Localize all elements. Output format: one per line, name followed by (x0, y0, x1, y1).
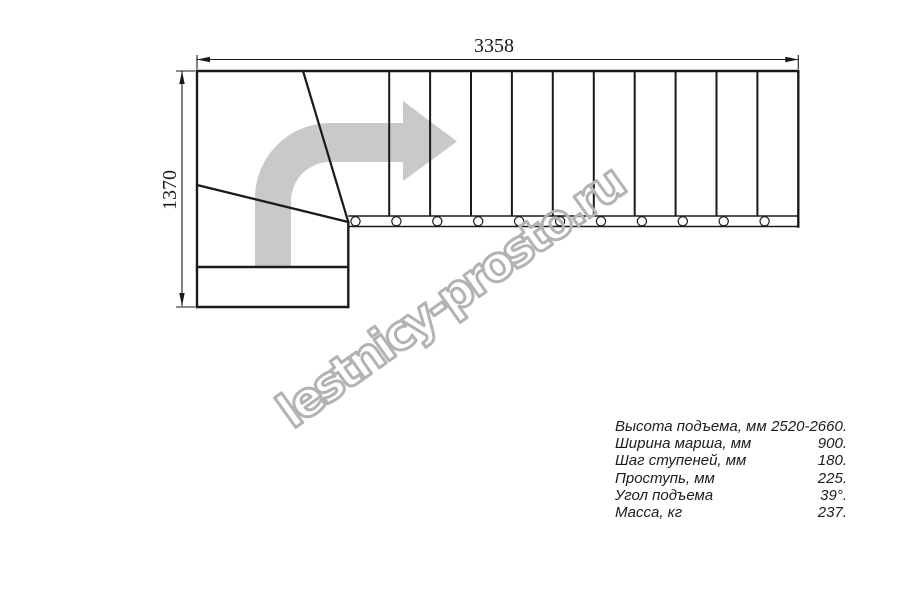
spec-row: Угол подъема 39°. (615, 487, 847, 504)
spec-row: Проступь, мм 225. (615, 470, 847, 487)
spec-value: 180. (818, 452, 847, 469)
spec-value: 237. (818, 504, 847, 521)
stair-plan-page: 3358 1370 lestnicy-prosto.ru Высота подъ… (0, 0, 900, 600)
dimension-height-label: 1370 (159, 170, 181, 210)
dimension-height: 1370 (159, 71, 195, 307)
spec-row: Ширина марша, мм 900. (615, 435, 847, 452)
spec-value: 225. (818, 470, 847, 487)
spec-value: 39°. (820, 487, 847, 504)
spec-value: 2520-2660. (771, 418, 847, 435)
spec-label: Высота подъема, мм (615, 418, 767, 435)
spec-label: Угол подъема (615, 487, 713, 504)
spec-row: Масса, кг 237. (615, 504, 847, 521)
watermark-text: lestnicy-prosto.ru (267, 155, 634, 439)
spec-value: 900. (818, 435, 847, 452)
spec-row: Шаг ступеней, мм 180. (615, 452, 847, 469)
dimension-width-label: 3358 (474, 35, 514, 57)
direction-arrow-icon (255, 101, 457, 267)
spec-label: Ширина марша, мм (615, 435, 751, 452)
dimension-width: 3358 (197, 35, 798, 69)
spec-label: Проступь, мм (615, 470, 715, 487)
spec-row: Высота подъема, мм 2520-2660. (615, 418, 847, 435)
spec-table: Высота подъема, мм 2520-2660. Ширина мар… (615, 418, 847, 521)
spec-label: Шаг ступеней, мм (615, 452, 746, 469)
spec-label: Масса, кг (615, 504, 682, 521)
